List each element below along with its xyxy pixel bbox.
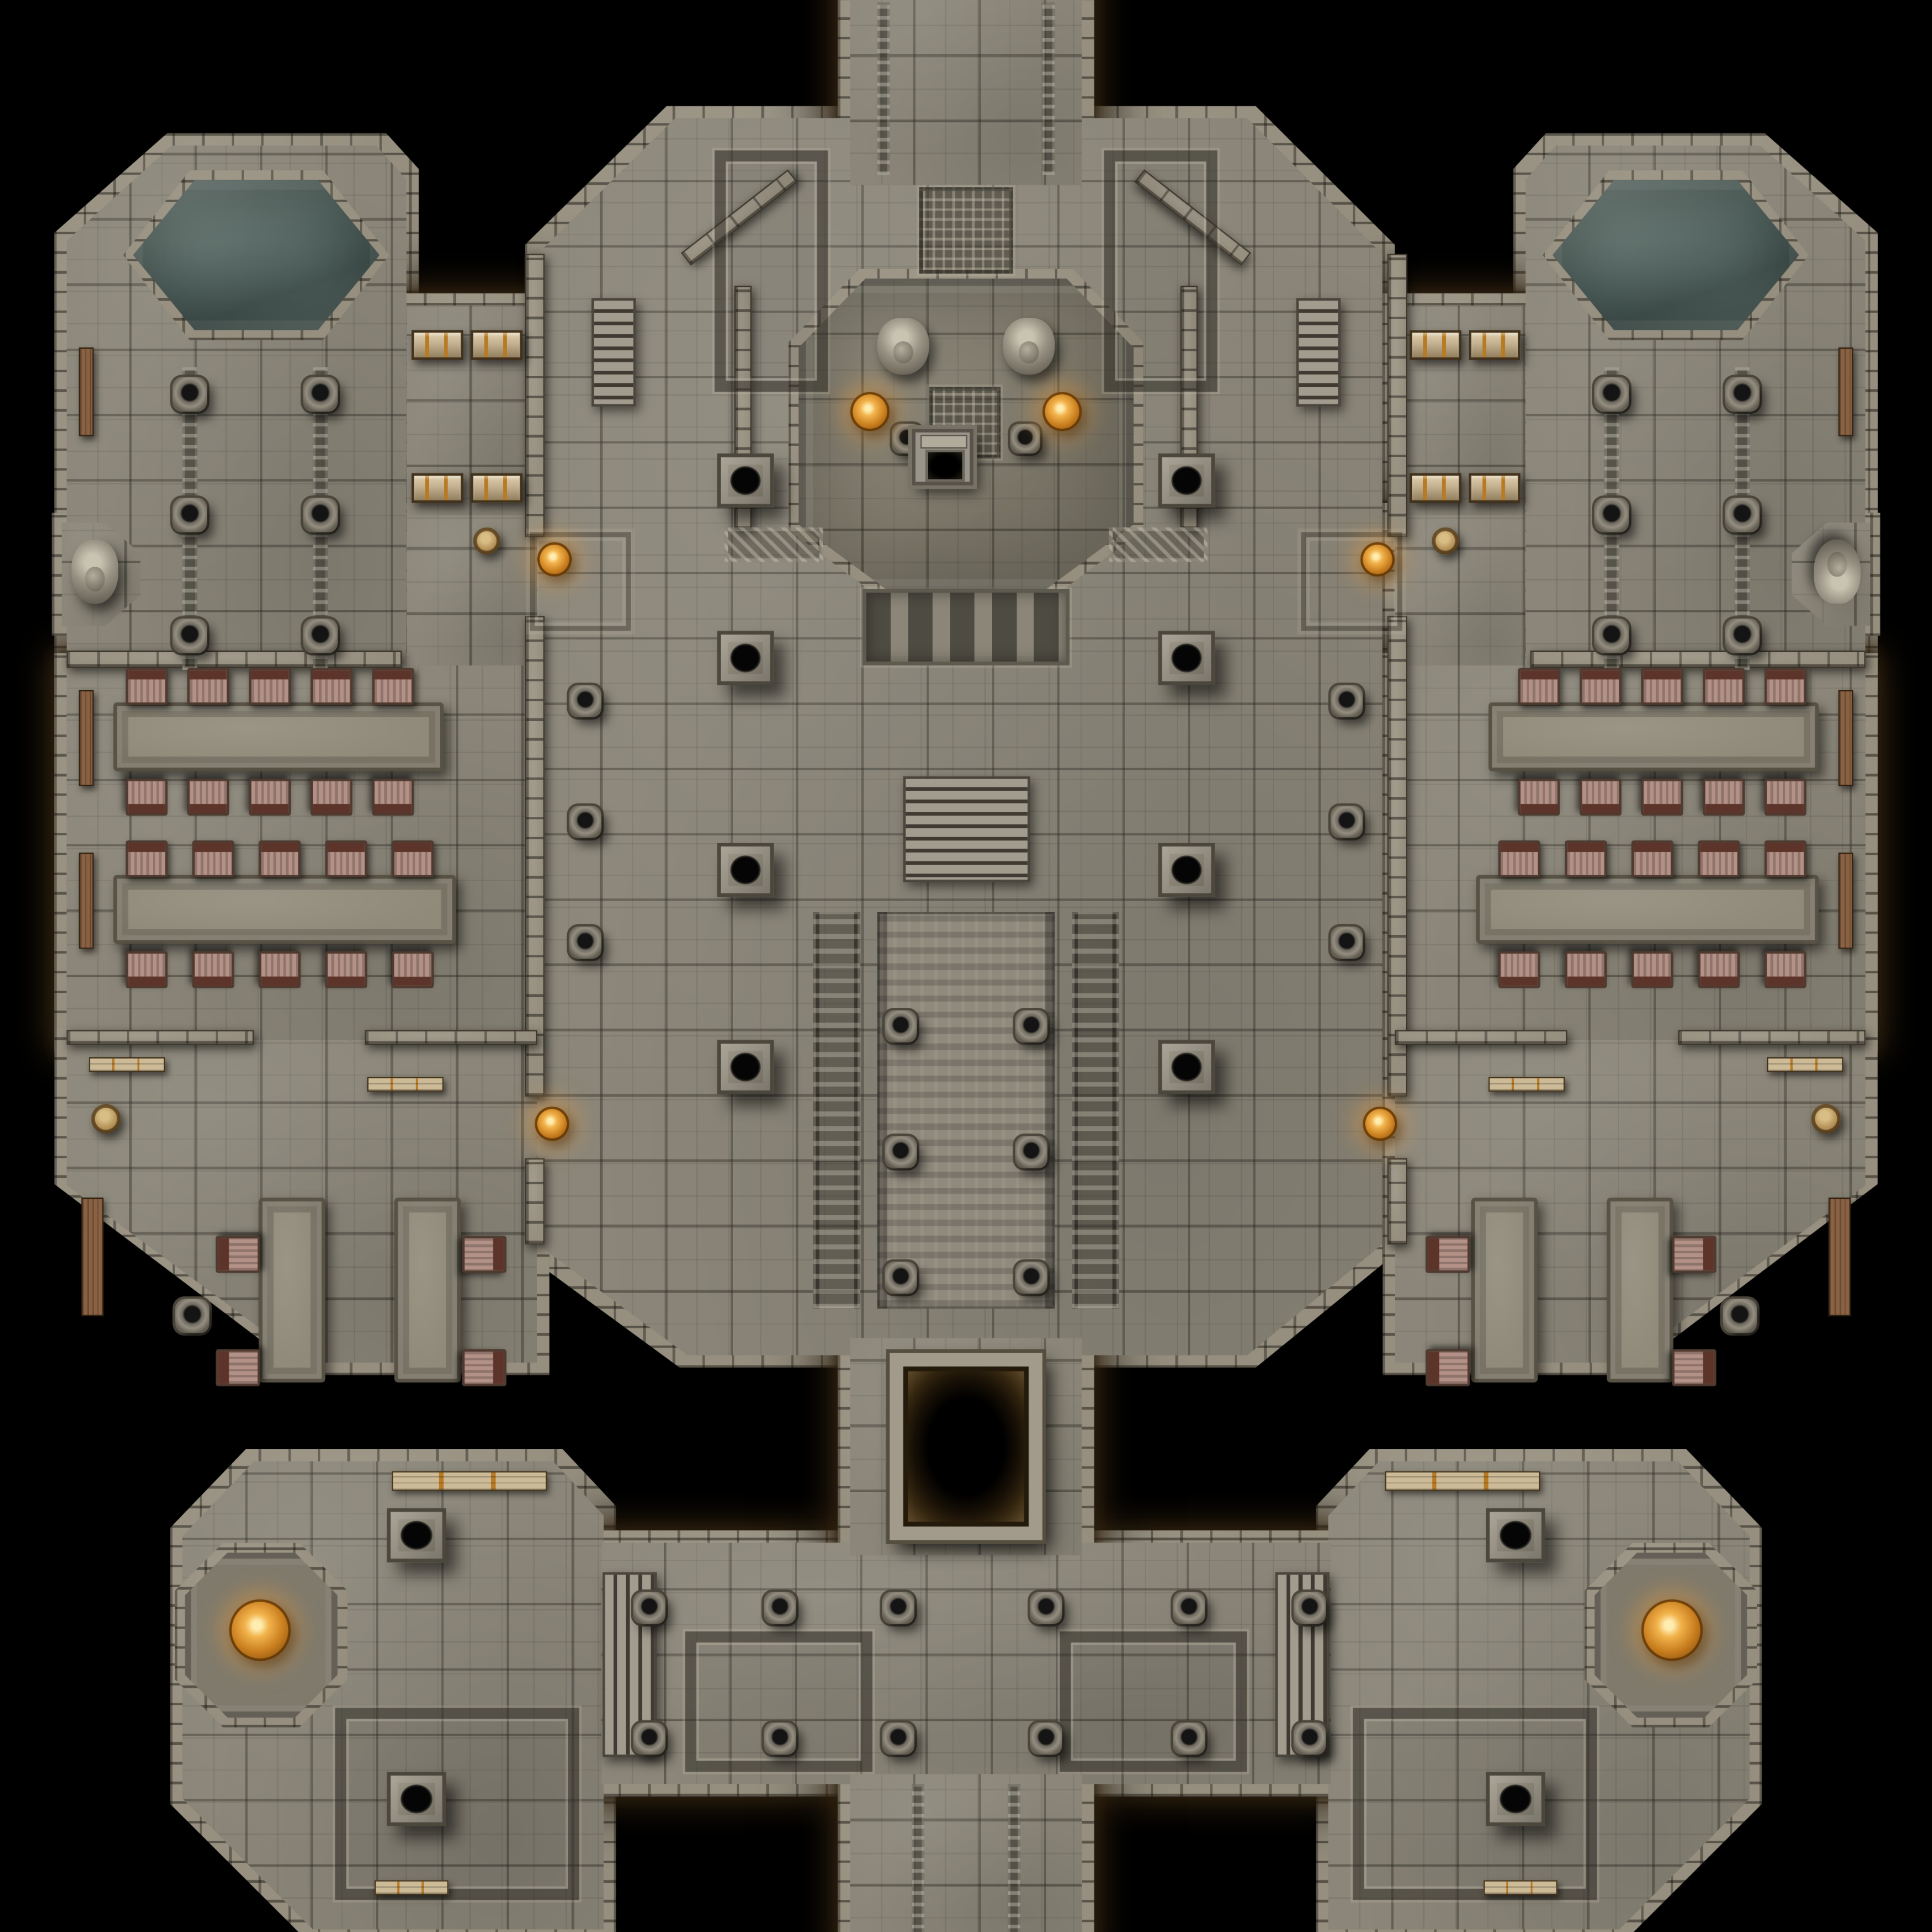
pedestal-hall-e3 [1331, 926, 1363, 959]
chair [1698, 951, 1740, 988]
pillar-hall-nw [717, 631, 774, 685]
chair [1641, 668, 1683, 705]
carpet-frame-bottom-right [1353, 1708, 1597, 1900]
chair [216, 1349, 260, 1386]
approach-stairs [903, 776, 1030, 882]
chair [392, 840, 434, 877]
chair [372, 668, 414, 705]
exit-meander-east [1008, 1784, 1020, 1932]
pillar-shrine-west [717, 454, 774, 508]
pillar-bottom-left-s [387, 1772, 446, 1826]
pedestal-poolroom-l5 [303, 498, 338, 532]
chair [259, 951, 300, 988]
chair [462, 1236, 506, 1273]
pedestal-aisle-w1 [885, 1010, 917, 1042]
chair [126, 779, 167, 816]
pedestal-aisle-e2 [1015, 1136, 1047, 1168]
pedestal-poolroom-l1 [172, 377, 207, 412]
chest-left-se [471, 473, 523, 503]
pedestal-poolroom-r3 [1594, 619, 1629, 653]
dining-table-left-2 [113, 875, 456, 944]
bench-pool-left [79, 347, 93, 436]
statue-wall-right [1814, 540, 1861, 604]
small-table-left-2 [394, 1198, 461, 1383]
aisle-meander-east [1072, 912, 1119, 1308]
north-corridor-meander-east [1042, 2, 1055, 175]
pedestal-shall-s2 [764, 1723, 796, 1755]
pedestal-hall-e1 [1331, 685, 1363, 717]
chair [1580, 668, 1621, 705]
approach-panel [862, 589, 1069, 665]
pedestal-shall-s6 [1294, 1723, 1326, 1755]
chair [1631, 840, 1673, 877]
dining-right-south-wall-a [1678, 1030, 1865, 1045]
storage-link-left-floor [407, 515, 537, 678]
chair [192, 951, 234, 988]
pedestal-hall-w1 [569, 685, 601, 717]
altar [912, 429, 973, 485]
brazier-orb-hall-ne [1360, 542, 1395, 577]
brazier-orb-shrine-west [850, 392, 890, 431]
dining-table-right-2 [1476, 875, 1819, 944]
pedestal-shall-n2 [764, 1592, 796, 1624]
chair [1703, 668, 1745, 705]
south-exit-corridor-floor [850, 1774, 1082, 1932]
shelf-bottom-right-bot [1483, 1880, 1558, 1895]
pillar-hall-mw [717, 843, 774, 897]
bench-dining-right-1 [1838, 690, 1853, 786]
chair [1765, 779, 1806, 816]
shelf-bottom-left-top [392, 1471, 547, 1491]
chair [372, 779, 414, 816]
north-corridor-meander-west [877, 2, 890, 175]
chair [1631, 951, 1673, 988]
pedestal-hall-w2 [569, 806, 601, 838]
hall-east-wall-b [1387, 616, 1407, 1097]
pedestal-lower-right [1723, 1299, 1757, 1333]
battlemap-stage: Stone Temple Dungeon Battlemap [0, 0, 1932, 1932]
dining-right-south-wall-b [1395, 1030, 1567, 1045]
pedestal-poolroom-r5 [1725, 498, 1759, 532]
barrel-right-corridor [1432, 527, 1459, 554]
pillar-bottom-right-n [1486, 1508, 1545, 1563]
pedestal-aisle-w3 [885, 1262, 917, 1294]
bench-dining-right-2 [1838, 853, 1853, 949]
pit [890, 1353, 1042, 1540]
chair [392, 951, 434, 988]
pedestal-hall-w3 [569, 926, 601, 959]
pedestal-poolroom-r1 [1594, 377, 1629, 412]
chair [249, 779, 291, 816]
west-edge-stairs [592, 298, 636, 407]
chair [1765, 951, 1806, 988]
chair [1498, 840, 1540, 877]
pillar-shrine-east [1158, 454, 1215, 508]
pedestal-poolroom-l4 [303, 377, 338, 412]
brazier-orb-bottom-right [1641, 1599, 1703, 1661]
pedestal-shall-n6 [1294, 1592, 1326, 1624]
chair [216, 1236, 260, 1273]
shelf-lower-left-b [367, 1077, 443, 1092]
pedestal-shall-n3 [882, 1592, 914, 1624]
pedestal-shall-s5 [1173, 1723, 1205, 1755]
chest-left-sw [412, 473, 463, 503]
dining-left-north-wall [67, 650, 402, 667]
shelf-lower-right-a [1767, 1057, 1843, 1072]
pillar-hall-sw [717, 1040, 774, 1094]
dining-left-south-wall-b [365, 1030, 537, 1045]
chair [1641, 779, 1683, 816]
chair [1703, 779, 1745, 816]
chest-left-nw [412, 330, 463, 360]
bench-dining-left-2 [79, 853, 93, 949]
east-edge-stairs [1296, 298, 1340, 407]
chair [1498, 951, 1540, 988]
dining-left-south-wall-a [67, 1030, 254, 1045]
shelf-bottom-left-bot [374, 1880, 448, 1895]
hall-east-wall-a [1387, 254, 1407, 537]
barrel-left-corridor [473, 527, 500, 554]
pedestal-aisle-e1 [1015, 1010, 1047, 1042]
chair [325, 951, 367, 988]
chair [249, 668, 291, 705]
brazier-orb-hall-se [1363, 1106, 1397, 1141]
shelf-lower-left-a [89, 1057, 165, 1072]
chest-left-ne [471, 330, 523, 360]
pedestal-poolroom-r6 [1725, 619, 1759, 653]
pillar-bottom-left-n [387, 1508, 446, 1563]
chair [462, 1349, 506, 1386]
dining-right-north-wall [1530, 650, 1866, 667]
brazier-orb-hall-nw [537, 542, 572, 577]
chair [187, 668, 229, 705]
chair [1765, 668, 1806, 705]
chair [1765, 840, 1806, 877]
aisle-meander-west [813, 912, 860, 1308]
bench-dining-left-1 [79, 690, 93, 786]
hall-east-wall-c [1387, 1158, 1407, 1245]
pedestal-shall-n5 [1173, 1592, 1205, 1624]
dining-table-left-1 [113, 702, 443, 771]
small-table-left-1 [259, 1198, 325, 1383]
chair [1426, 1349, 1470, 1386]
pillar-bottom-right-s [1486, 1772, 1545, 1826]
bench-lower-left [81, 1198, 103, 1316]
exit-meander-west [912, 1784, 924, 1932]
chair [1565, 840, 1607, 877]
hall-west-wall-b [525, 616, 545, 1097]
brazier-orb-shrine-east [1042, 392, 1082, 431]
pedestal-shall-s3 [882, 1723, 914, 1755]
pedestal-poolroom-r4 [1725, 377, 1759, 412]
knot-panel-east [1109, 527, 1207, 562]
chair [325, 840, 367, 877]
pedestal-aisle-w2 [885, 1136, 917, 1168]
storage-link-right-floor [1395, 515, 1525, 678]
chair [259, 840, 300, 877]
bench-lower-right [1828, 1198, 1851, 1316]
chair [126, 668, 167, 705]
pedestal-hall-e2 [1331, 806, 1363, 838]
pedestal-shall-n1 [633, 1592, 666, 1624]
pedestal-poolroom-l6 [303, 619, 338, 653]
statue-shrine-east [1003, 318, 1055, 374]
temple-maze-emblem [919, 187, 1013, 273]
aisle-knot-path [877, 912, 1055, 1308]
chair [1672, 1236, 1716, 1273]
chest-right-nw [1409, 330, 1461, 360]
chair [1580, 779, 1621, 816]
pillar-hall-se [1158, 1040, 1215, 1094]
barrel-lower-right [1811, 1104, 1840, 1133]
shelf-lower-right-b [1489, 1077, 1565, 1092]
chair [126, 951, 167, 988]
carpet-frame-bottom-left [335, 1708, 579, 1900]
chair [1426, 1236, 1470, 1273]
pillar-hall-me [1158, 843, 1215, 897]
statue-shrine-west [877, 318, 929, 374]
pedestal-shall-s4 [1030, 1723, 1062, 1755]
pedestal-aisle-e3 [1015, 1262, 1047, 1294]
chest-right-sw [1409, 473, 1461, 503]
chair [1565, 951, 1607, 988]
pedestal-lower-left [175, 1299, 209, 1333]
small-table-right-1 [1607, 1198, 1673, 1383]
hall-west-wall-a [525, 254, 545, 537]
chair [1698, 840, 1740, 877]
chest-right-se [1469, 473, 1521, 503]
pedestal-poolroom-l3 [172, 619, 207, 653]
pedestal-shall-s1 [633, 1723, 666, 1755]
chair [1518, 779, 1560, 816]
bench-pool-right [1838, 347, 1853, 436]
chair [1672, 1349, 1716, 1386]
stone-temple-map [0, 0, 1932, 1932]
hall-west-wall-c [525, 1158, 545, 1245]
pedestal-shrine-e [1010, 424, 1040, 453]
chair [187, 779, 229, 816]
platform-frame-west [715, 150, 828, 392]
south-hall-frame-east [1060, 1631, 1247, 1771]
pedestal-poolroom-l2 [172, 498, 207, 532]
brazier-orb-hall-sw [535, 1106, 569, 1141]
chair [310, 779, 352, 816]
chest-right-ne [1469, 330, 1521, 360]
platform-frame-east [1104, 150, 1217, 392]
pedestal-poolroom-r2 [1594, 498, 1629, 532]
statue-wall-left [71, 540, 118, 604]
chair [310, 668, 352, 705]
chair [126, 840, 167, 877]
chair [192, 840, 234, 877]
shelf-bottom-right-top [1385, 1471, 1541, 1491]
pedestal-shall-n4 [1030, 1592, 1062, 1624]
pillar-hall-ne [1158, 631, 1215, 685]
knot-panel-west [724, 527, 823, 562]
chair [1518, 668, 1560, 705]
brazier-orb-bottom-left [229, 1599, 291, 1661]
dining-table-right-1 [1489, 702, 1819, 771]
small-table-right-2 [1471, 1198, 1538, 1383]
barrel-lower-left [91, 1104, 121, 1133]
